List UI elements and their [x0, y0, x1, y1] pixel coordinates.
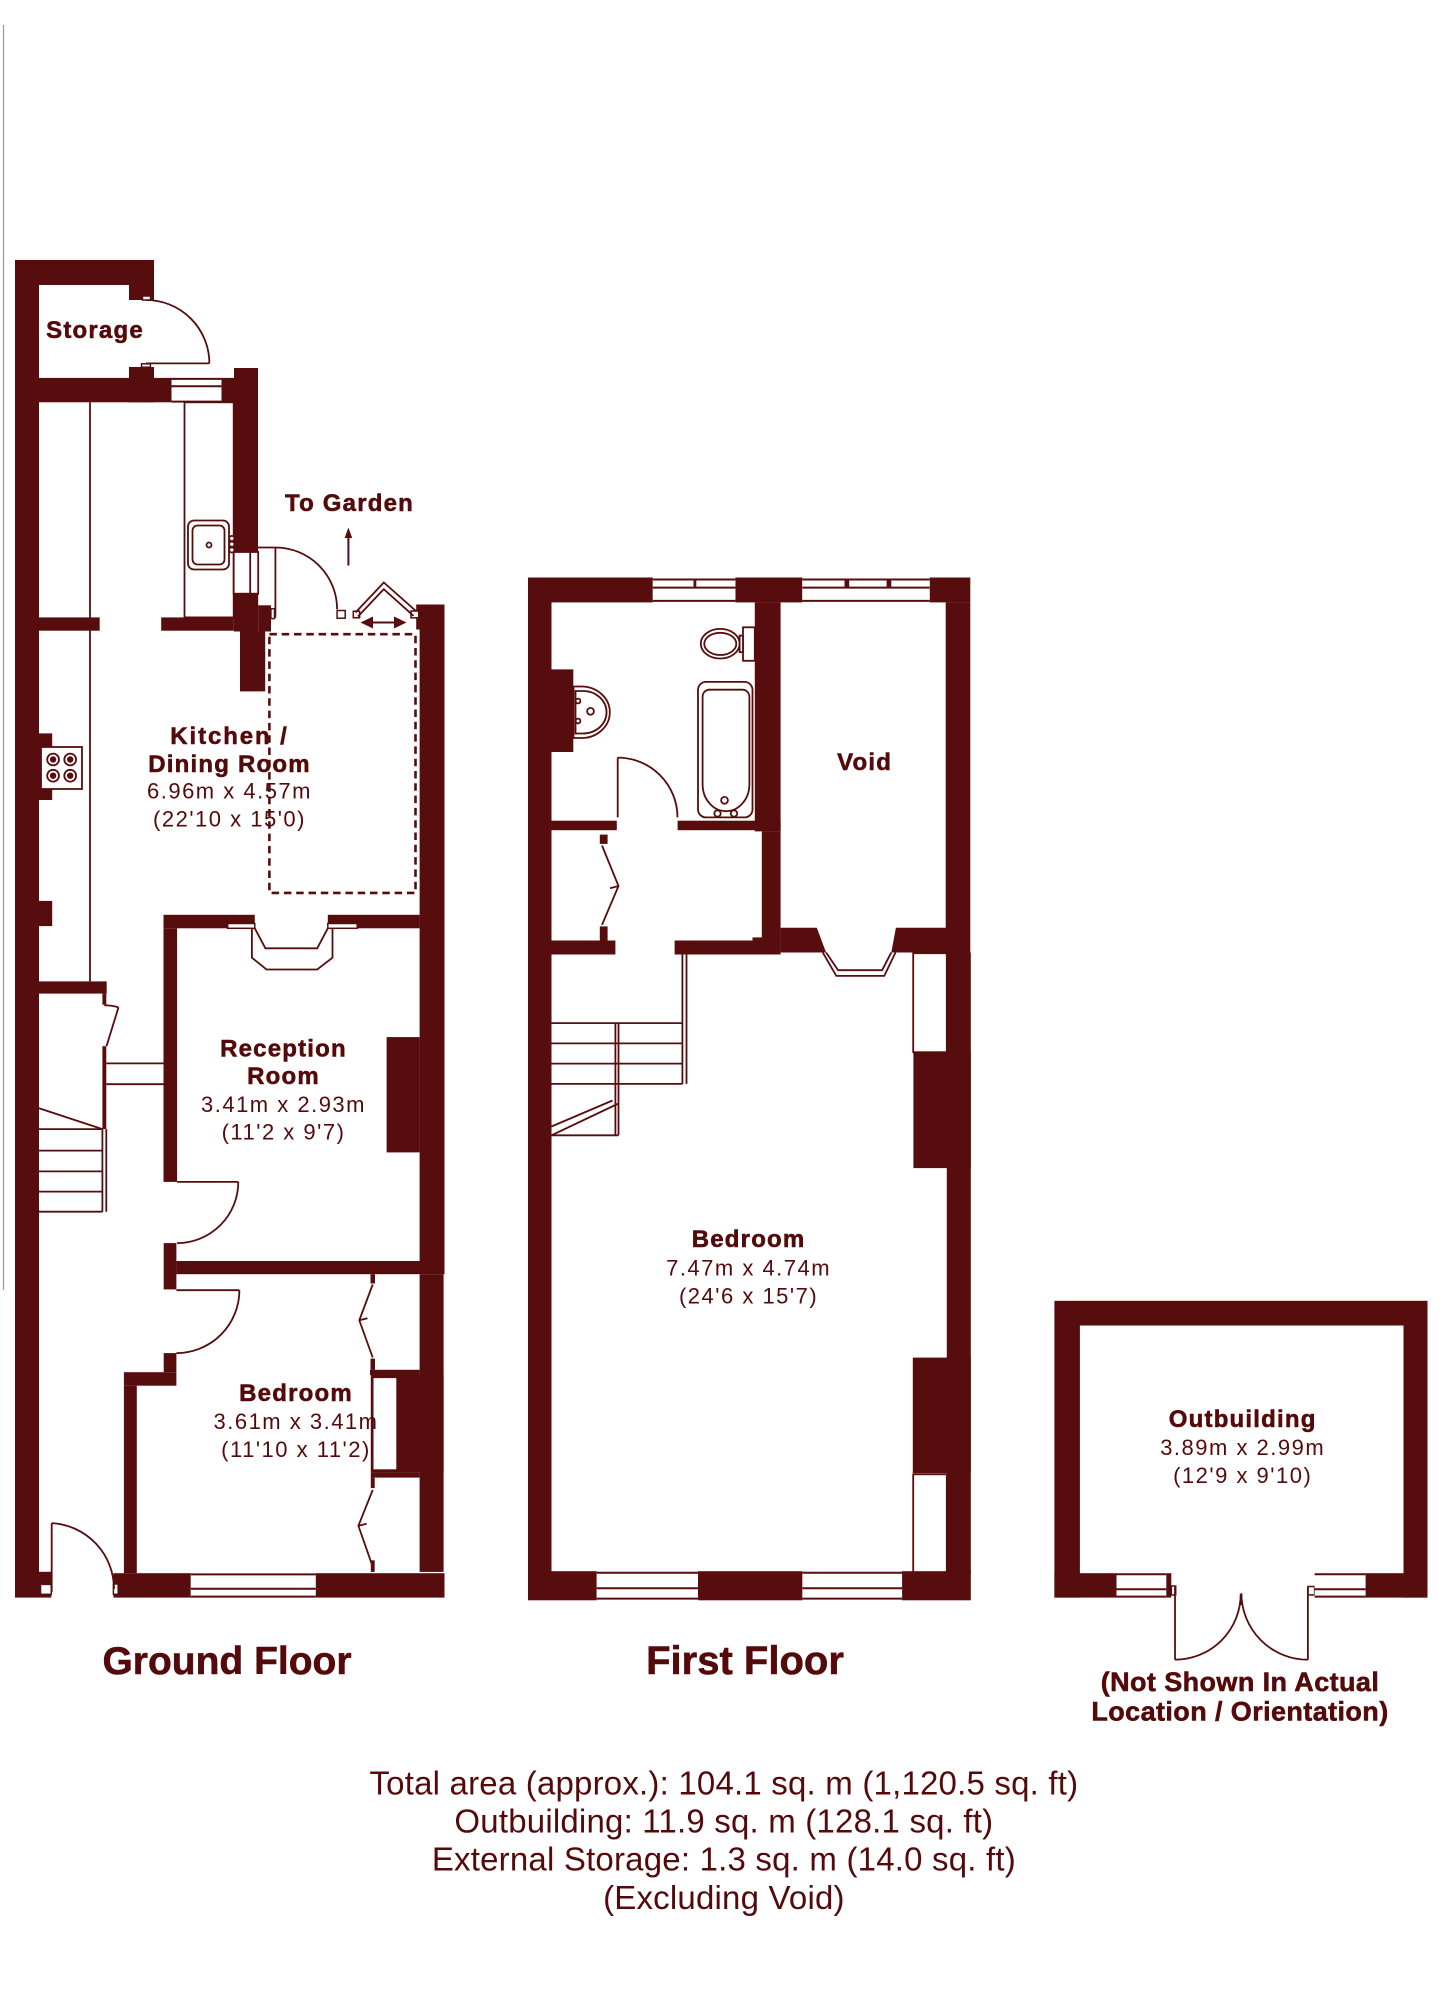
svg-text:(22'10 x 15'0): (22'10 x 15'0)	[153, 806, 306, 831]
svg-text:(11'2 x 9'7): (11'2 x 9'7)	[222, 1119, 346, 1144]
svg-text:3.41m x 2.93m: 3.41m x 2.93m	[201, 1092, 366, 1117]
svg-text:Location / Orientation): Location / Orientation)	[1091, 1696, 1388, 1726]
svg-text:3.89m x 2.99m: 3.89m x 2.99m	[1160, 1435, 1325, 1460]
svg-text:Room: Room	[247, 1063, 320, 1090]
svg-text:(11'10 x 11'2): (11'10 x 11'2)	[221, 1437, 371, 1462]
svg-text:Reception: Reception	[220, 1036, 347, 1063]
svg-text:Bedroom: Bedroom	[239, 1380, 353, 1407]
svg-text:External Storage: 1.3 sq. m (1: External Storage: 1.3 sq. m (14.0 sq. ft…	[432, 1841, 1016, 1878]
svg-text:First Floor: First Floor	[646, 1639, 844, 1683]
svg-text:Ground Floor: Ground Floor	[102, 1640, 351, 1683]
svg-text:Void: Void	[837, 749, 892, 776]
svg-text:Kitchen /: Kitchen /	[170, 723, 288, 750]
svg-text:7.47m x 4.74m: 7.47m x 4.74m	[666, 1256, 831, 1281]
svg-text:(12'9 x 9'10): (12'9 x 9'10)	[1173, 1463, 1312, 1488]
svg-text:3.61m x 3.41m: 3.61m x 3.41m	[213, 1409, 378, 1434]
svg-text:6.96m x 4.57m: 6.96m x 4.57m	[147, 779, 312, 804]
svg-text:(24'6 x 15'7): (24'6 x 15'7)	[679, 1284, 818, 1309]
svg-text:Storage: Storage	[46, 317, 144, 344]
svg-text:Bedroom: Bedroom	[692, 1226, 806, 1253]
svg-text:(Excluding Void): (Excluding Void)	[603, 1879, 845, 1916]
svg-text:(Not Shown In Actual: (Not Shown In Actual	[1101, 1667, 1379, 1697]
svg-text:Outbuilding: 11.9 sq. m (128.1: Outbuilding: 11.9 sq. m (128.1 sq. ft)	[454, 1803, 993, 1840]
svg-text:To Garden: To Garden	[285, 490, 414, 517]
svg-text:Total area (approx.): 104.1 sq: Total area (approx.): 104.1 sq. m (1,120…	[369, 1764, 1078, 1801]
svg-text:Outbuilding: Outbuilding	[1169, 1406, 1317, 1433]
svg-text:Dining Room: Dining Room	[148, 751, 311, 778]
